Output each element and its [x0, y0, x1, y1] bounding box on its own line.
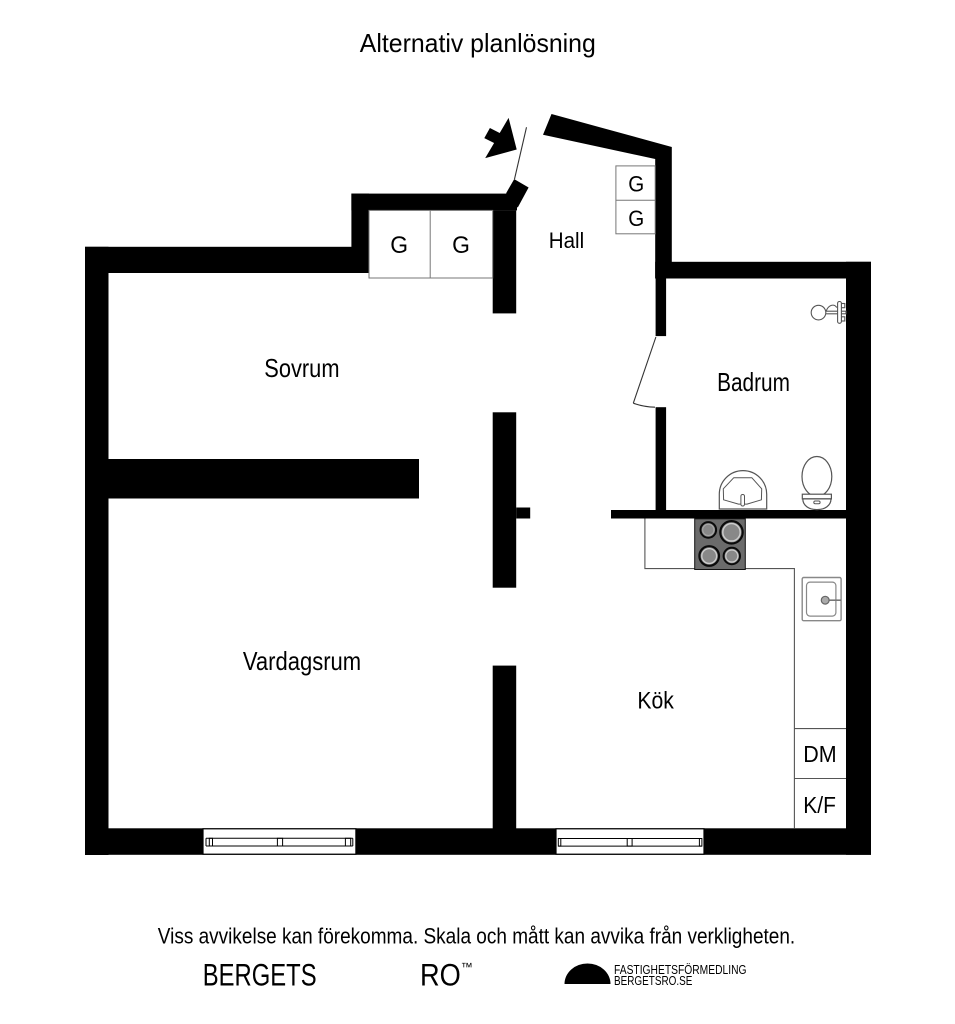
svg-text:Hall: Hall [549, 228, 584, 253]
svg-text:G: G [628, 172, 644, 197]
svg-text:BERGETS: BERGETS [203, 957, 317, 993]
svg-text:™: ™ [461, 960, 473, 974]
svg-text:Badrum: Badrum [717, 367, 790, 397]
svg-text:G: G [628, 206, 644, 231]
svg-text:G: G [452, 232, 470, 259]
svg-text:Alternativ planlösning: Alternativ planlösning [360, 28, 596, 58]
svg-text:Vardagsrum: Vardagsrum [243, 646, 361, 676]
svg-text:BERGETSRO.SE: BERGETSRO.SE [614, 973, 693, 988]
svg-text:Sovrum: Sovrum [264, 353, 339, 383]
svg-text:RO: RO [420, 957, 461, 993]
svg-text:DM: DM [803, 741, 836, 767]
svg-text:Kök: Kök [637, 687, 674, 714]
svg-text:G: G [390, 232, 408, 259]
svg-text:K/F: K/F [803, 792, 836, 818]
svg-text:Viss avvikelse kan förekomma.: Viss avvikelse kan förekomma. Skala och … [158, 924, 795, 949]
